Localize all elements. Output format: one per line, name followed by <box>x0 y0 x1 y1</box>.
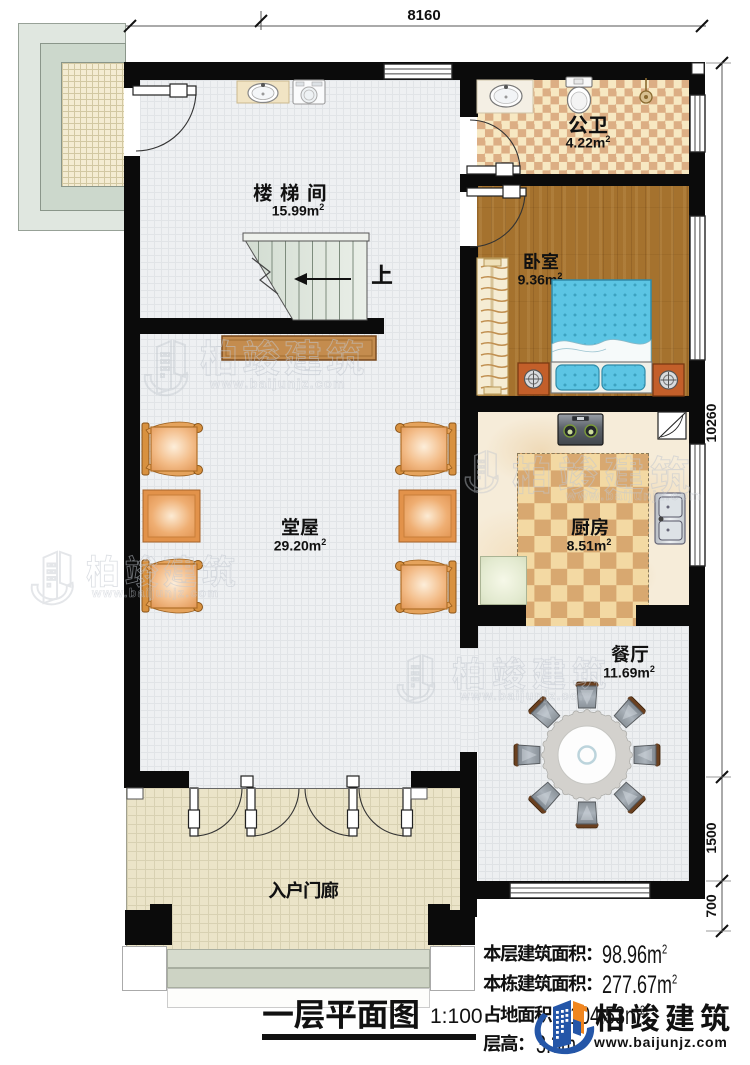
svg-text:1500: 1500 <box>703 822 719 853</box>
svg-text:www.baijunjz.com: www.baijunjz.com <box>91 586 220 600</box>
svg-text:700: 700 <box>703 894 719 918</box>
svg-text:www.baijunjz.com: www.baijunjz.com <box>565 488 702 503</box>
svg-text:www.baijunjz.com: www.baijunjz.com <box>459 689 592 703</box>
svg-text:1:100: 1:100 <box>430 1005 483 1028</box>
svg-text:10260: 10260 <box>703 403 719 442</box>
svg-text:www.baijunjz.com: www.baijunjz.com <box>209 376 346 391</box>
svg-text:8160: 8160 <box>407 7 440 24</box>
svg-text:www.baijunjz.com: www.baijunjz.com <box>593 1034 728 1050</box>
